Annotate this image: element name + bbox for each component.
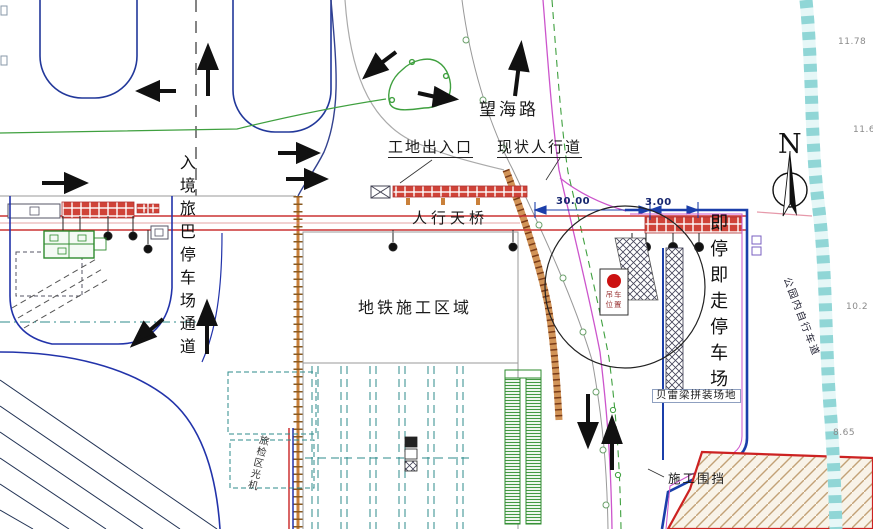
arrow-right-mid2 — [286, 171, 324, 187]
crane-position-label: 吊车 位置 — [600, 290, 628, 310]
bike-path-band — [806, 0, 836, 529]
dimension-3m: 3.00 — [645, 197, 672, 208]
arrow-downleft-top — [366, 52, 396, 76]
dimension-30m: 30.00 — [556, 196, 590, 207]
elevation-value-3: 10.2 — [846, 302, 868, 312]
compass-icon — [773, 151, 807, 216]
entrance-platform — [371, 158, 560, 205]
legend-stack — [405, 437, 417, 471]
arrow-up-road — [511, 46, 527, 96]
inbound-bus-channel-label: 入境旅巴停车场通道 — [177, 154, 195, 361]
site-plan-screenshot: 望海路 工地出入口 现状人行道 人行天桥 地铁施工区域 入境旅巴停车场通道 即停… — [0, 0, 873, 529]
construction-enclosure-label: 施工围挡 — [668, 472, 726, 486]
top-left-road-islands — [1, 0, 331, 132]
construction-fence-vertical — [289, 196, 298, 529]
arrow-right-left-edge — [42, 175, 84, 191]
arrow-down-bottom — [580, 394, 596, 444]
site-plan-drawing — [0, 0, 873, 529]
metro-structures — [228, 232, 541, 529]
drop-off-parking-label: 即停即走停车场 — [707, 213, 727, 395]
existing-sidewalk-label: 现状人行道 — [497, 139, 582, 158]
crane-position-line1: 吊车 — [606, 290, 623, 299]
crane-position-line2: 位置 — [606, 300, 623, 309]
arrow-up-top — [200, 48, 216, 96]
wanghai-road-label: 望海路 — [479, 101, 539, 120]
construction-enclosure-area — [668, 452, 873, 529]
arrow-downleft-channel — [134, 319, 163, 344]
arrow-right-road — [418, 89, 454, 105]
site-entrance-label: 工地出入口 — [388, 139, 473, 158]
elevation-value-1: 11.78 — [838, 37, 866, 47]
arrow-left-top — [140, 83, 176, 99]
arrow-right-mid1 — [278, 145, 316, 161]
bottom-left-road-markings — [0, 352, 220, 529]
metro-construction-area-label: 地铁施工区域 — [358, 299, 472, 317]
pedestrian-bridge-label: 人行天桥 — [412, 210, 488, 227]
north-mark: N — [778, 130, 802, 160]
elevation-value-2: 11.6 — [853, 125, 873, 135]
elevation-value-4: 8.65 — [833, 428, 855, 438]
bailey-beam-yard-label: 贝雷梁拼装场地 — [652, 389, 741, 403]
